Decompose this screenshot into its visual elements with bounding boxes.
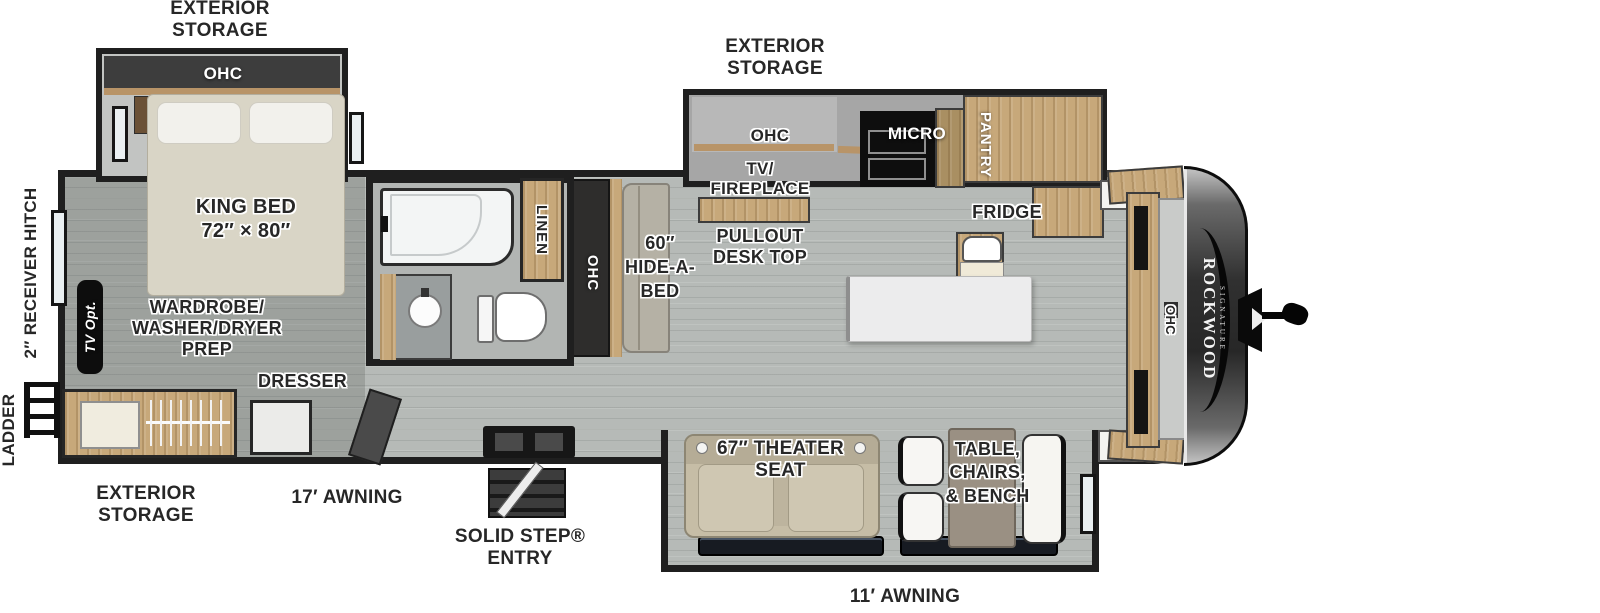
label-ohc-hallway: OHC	[585, 238, 601, 308]
label-micro: MICRO	[857, 124, 977, 144]
dresser	[250, 400, 312, 455]
front-window-slot-top	[1134, 206, 1148, 270]
label-awning-17: 17′ AWNING	[247, 487, 447, 509]
front-window-slot-bottom	[1134, 370, 1148, 434]
bedroom-window-right	[349, 112, 364, 164]
label-exterior-storage-bottom-left: EXTERIOR STORAGE	[46, 483, 246, 528]
vanity-sink	[408, 294, 442, 328]
label-receiver-hitch: 2″ RECEIVER HITCH	[21, 153, 41, 393]
brand-signature-text: SIGNATURE	[1218, 235, 1225, 403]
vanity-faucet	[421, 288, 429, 297]
brand-rockwood-text: ROCKWOOD	[1201, 235, 1218, 403]
label-ohc-kitchen: OHC	[710, 126, 830, 146]
label-pullout-desk-top: PULLOUT DESK TOP	[695, 226, 825, 268]
rear-wall-window	[51, 210, 67, 306]
slideout-end-window	[1080, 474, 1096, 534]
label-king-bed: KING BED 72″ × 80″	[147, 196, 345, 243]
hitch-handle-knob	[1279, 300, 1310, 328]
label-wardrobe: WARDROBE/ WASHER/DRYER PREP	[107, 297, 307, 361]
toilet-tank	[477, 295, 494, 343]
bed-pillow-right	[249, 102, 333, 144]
label-tv-opt: TV Opt.	[82, 284, 98, 370]
kitchen-island	[846, 276, 1032, 342]
label-table-chairs-bench: TABLE, CHAIRS, & BENCH	[920, 438, 1055, 508]
entry-landing-tread-1	[495, 433, 523, 451]
label-exterior-storage-top-right: EXTERIOR STORAGE	[675, 36, 875, 81]
label-linen: LINEN	[534, 190, 550, 270]
floorplan-canvas: SIGNATURE ROCKWOOD EXTERIOR STORAGE EXTE…	[0, 0, 1600, 613]
label-fridge: FRIDGE	[947, 202, 1067, 223]
label-exterior-storage-top-left: EXTERIOR STORAGE	[120, 0, 320, 43]
micro-cabinet	[935, 108, 965, 188]
label-solid-step-entry: SOLID STEP® ENTRY	[420, 526, 620, 571]
stove-grate-bottom	[868, 158, 926, 180]
vanity-wood-edge	[380, 274, 396, 360]
label-dresser: DRESSER	[240, 371, 365, 392]
washer-dryer-space	[80, 401, 140, 449]
label-ohc-bedroom: OHC	[160, 64, 286, 84]
toilet-bowl	[495, 292, 547, 342]
label-theater-seat: 67″ THEATER SEAT	[688, 438, 873, 483]
brand-lockup: SIGNATURE ROCKWOOD	[1187, 235, 1225, 403]
closet-hangers-right	[190, 400, 226, 446]
entry-landing-tread-2	[535, 433, 563, 451]
slide-floor-mat-left	[698, 536, 884, 556]
label-awning-11: 11′ AWNING	[805, 586, 1005, 608]
island-sink	[962, 236, 1002, 262]
label-ladder: LADDER	[0, 370, 19, 490]
bed-pillow-left	[157, 102, 241, 144]
shower-head	[381, 216, 388, 232]
tv-fireplace-cabinet	[698, 197, 810, 223]
label-ohc-front: OHC	[1164, 294, 1178, 346]
bedroom-window-left	[112, 106, 128, 162]
closet-hangers-left	[150, 400, 182, 446]
label-pantry: PANTRY	[976, 99, 994, 191]
label-tv-fireplace: TV/ FIREPLACE	[695, 159, 825, 199]
